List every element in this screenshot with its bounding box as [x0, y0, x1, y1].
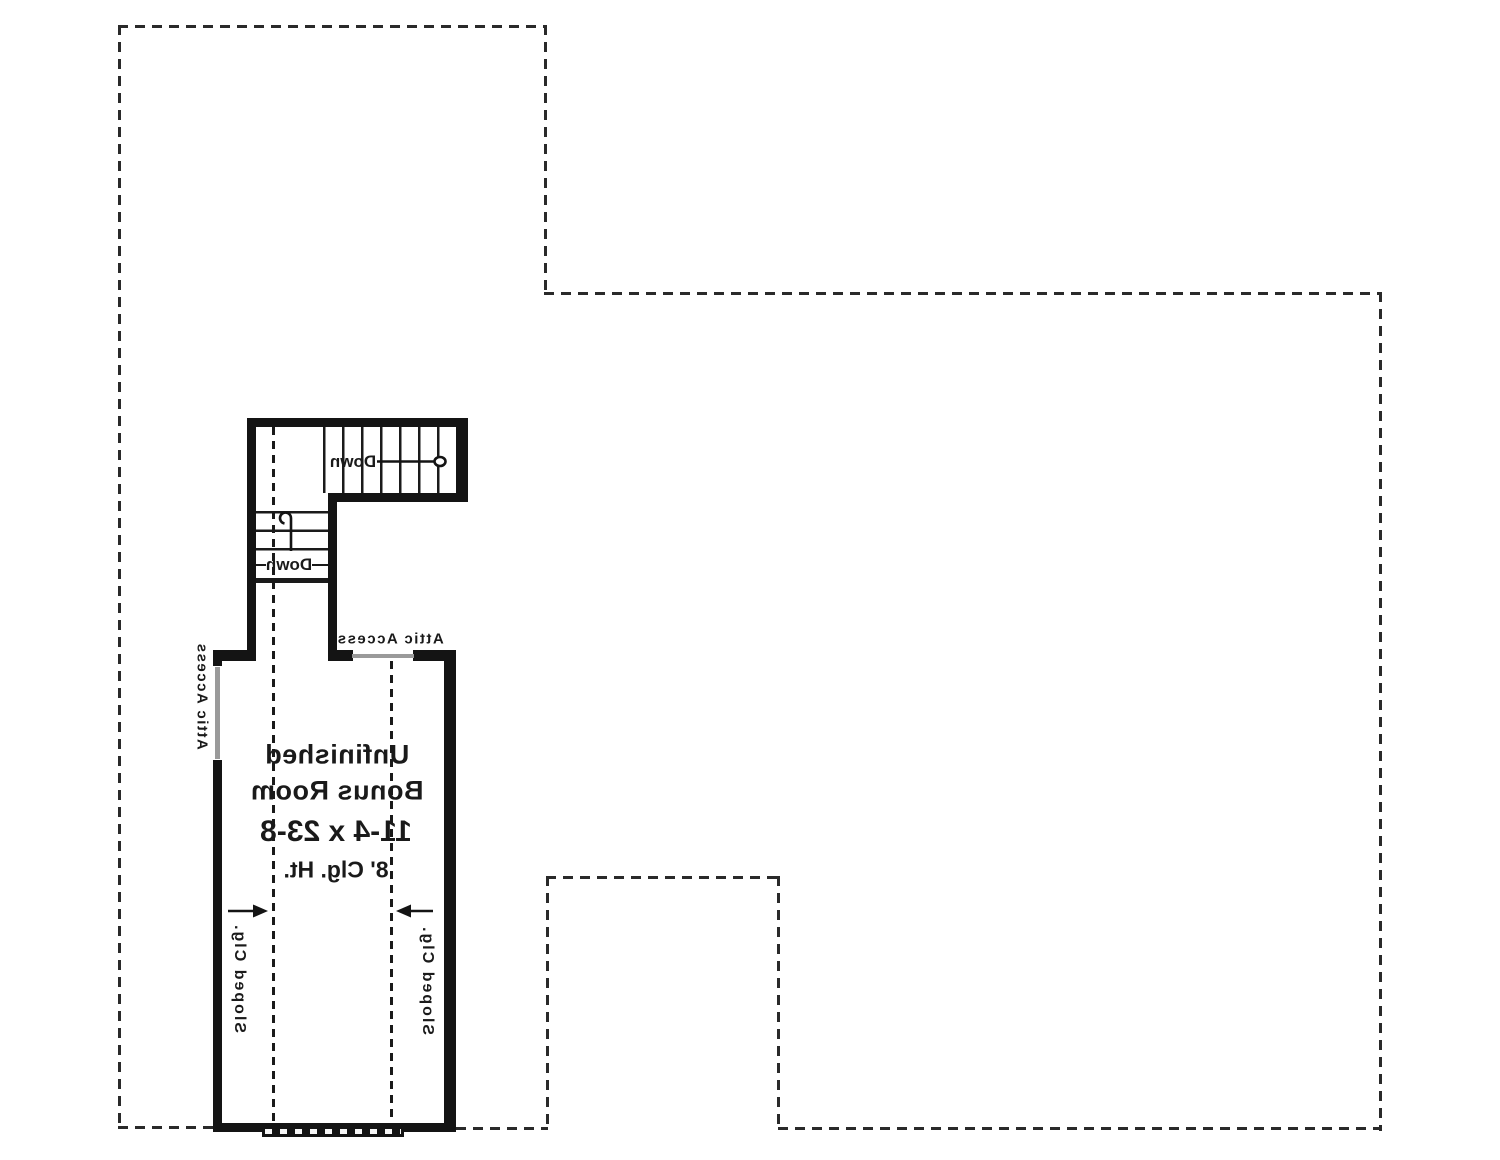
attic-access-left-panel: [215, 667, 220, 759]
arrow-overlay: [0, 0, 1500, 1160]
roof-outline-bottom-right: [778, 1127, 1382, 1130]
bottom-wall-vent-slats: [265, 1129, 401, 1134]
down-label-lower: Down: [266, 555, 312, 575]
sloped-left-arrow-head: [253, 905, 268, 918]
down-label-upper: Down: [330, 452, 376, 472]
room-name-line1: Unfinished: [265, 740, 410, 771]
sloped-right-arrow-head: [396, 905, 411, 918]
floor-plan: Down Down Attic Access Attic Access Unfi…: [0, 0, 1500, 1160]
stair-hall-top-wall: [247, 418, 468, 427]
stair-hall-bottom-wall: [328, 493, 468, 502]
attic-access-label-top: Attic Access: [336, 631, 444, 648]
roof-outline-step-vertical: [544, 25, 547, 293]
roof-outline-left: [118, 25, 121, 1130]
sloped-ceiling-line-right: [390, 661, 393, 1123]
roof-notch-right: [777, 876, 780, 1130]
sloped-ceiling-label-left: Sloped Clg.: [230, 923, 248, 1033]
roof-notch-top: [546, 876, 780, 879]
roof-outline-top-lower: [544, 292, 1382, 295]
stair-hall-right-wall: [456, 418, 468, 502]
down-label-tick-left: [256, 564, 266, 567]
roof-outline-top-upper: [118, 25, 547, 28]
attic-access-label-left: Attic Access: [194, 642, 211, 750]
attic-access-top-panel: [352, 654, 414, 658]
room-name-line2: Bonus Room: [251, 776, 424, 807]
room-right-wall: [444, 650, 456, 1132]
stair-landing-edge: [256, 578, 328, 583]
roof-notch-left: [546, 876, 549, 1130]
room-dimensions: 11-4 x 23-8: [260, 815, 412, 849]
stair-treads-lower-run: [256, 511, 328, 551]
roof-outline-bottom-middle: [456, 1127, 548, 1130]
sloped-ceiling-label-right: Sloped Clg.: [418, 925, 436, 1035]
room-ceiling-height: 8' Clg. Ht.: [283, 857, 388, 884]
stair-corridor-left-wall: [247, 418, 256, 661]
roof-outline-bottom-left: [118, 1126, 215, 1129]
down-label-tick-right: [312, 564, 328, 567]
roof-outline-right: [1379, 292, 1382, 1131]
